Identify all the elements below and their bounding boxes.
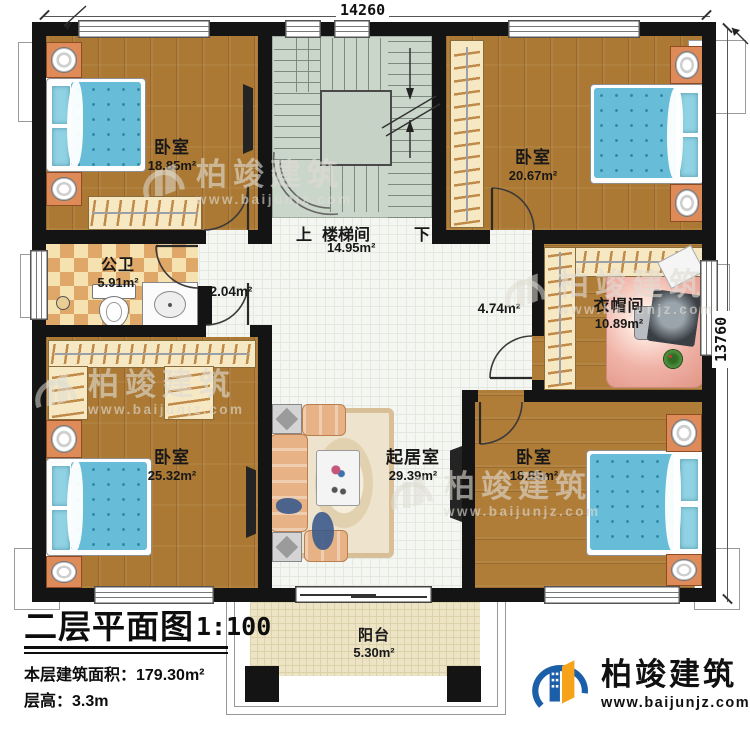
closet-bedroom-tr xyxy=(450,40,484,228)
label-corridor: 4.74m² xyxy=(478,301,521,317)
room-area: 5.30m² xyxy=(353,645,394,661)
nightstand xyxy=(46,420,82,458)
closet-hangers xyxy=(52,368,84,418)
closet-cloakroom-left xyxy=(544,247,576,390)
dimension-width-value: 14260 xyxy=(336,1,389,19)
balcony-post-left xyxy=(245,666,279,702)
title-underline-thick xyxy=(24,646,228,649)
side-table xyxy=(272,404,302,434)
lamp-icon xyxy=(51,47,77,73)
nightstand xyxy=(666,414,702,452)
floor-area-text: 本层建筑面积：179.30m² xyxy=(24,661,205,685)
coffee-table xyxy=(316,450,360,506)
wall-living-bedroombr xyxy=(462,390,475,588)
wall-h1-a xyxy=(32,230,206,244)
closet-rod xyxy=(559,252,561,385)
label-bathroom: 公卫 5.91m² xyxy=(97,256,138,291)
nightstand xyxy=(46,42,82,78)
lamp-icon xyxy=(671,419,697,446)
room-area: 18.85m² xyxy=(510,468,558,484)
closet-bedroom-bl xyxy=(48,340,256,368)
label-bedroom-bl: 卧室 25.32m² xyxy=(148,448,196,484)
sink-icon xyxy=(142,282,198,327)
window-top-2 xyxy=(285,20,321,38)
nightstand xyxy=(46,172,82,206)
room-area: 20.67m² xyxy=(509,168,557,184)
sheet-fold xyxy=(667,87,683,179)
room-name: 卧室 xyxy=(148,138,196,158)
stairwell-area: 14.95m² xyxy=(327,240,375,255)
room-area: 18.85m² xyxy=(148,158,196,174)
lamp-icon xyxy=(675,51,699,78)
window-top-4 xyxy=(508,20,640,38)
stair-treads-right xyxy=(388,38,432,218)
title-underline-thin xyxy=(24,652,228,654)
floor-height-text: 层高：3.3m xyxy=(24,687,108,711)
label-living-room: 起居室 29.39m² xyxy=(386,448,440,484)
lamp-icon xyxy=(51,561,77,584)
room-name: 卧室 xyxy=(510,448,558,468)
closet-rod xyxy=(55,353,249,355)
person-figure xyxy=(276,498,302,514)
closet-hangers xyxy=(168,367,210,419)
dimension-tick xyxy=(39,10,50,21)
lamp-icon xyxy=(51,425,77,452)
label-bedroom-br: 卧室 18.85m² xyxy=(510,448,558,484)
window-top-3 xyxy=(334,20,370,38)
room-name: 卧室 xyxy=(148,448,196,468)
company-logo-icon xyxy=(531,654,593,716)
mattress xyxy=(594,88,676,178)
wall-bedroombl-living xyxy=(258,337,272,588)
pillow xyxy=(678,457,700,503)
bed-tr xyxy=(590,84,704,184)
armchair-top xyxy=(302,404,346,436)
label-hallway: 2.04m² xyxy=(210,284,253,300)
bed-br xyxy=(586,450,704,556)
label-bedroom-tl: 卧室 18.85m² xyxy=(148,138,196,174)
lamp-icon xyxy=(51,177,77,201)
stair-landing xyxy=(320,90,392,166)
company-logo-text: 柏竣建筑 www.baijunjz.com xyxy=(601,659,750,711)
stair-down-label: 下 xyxy=(414,221,430,245)
stair-treads-bottom xyxy=(330,162,388,212)
room-name: 衣帽间 xyxy=(593,297,644,316)
wall-cloakroom-left-a xyxy=(532,244,544,336)
balcony-post-right xyxy=(447,666,481,702)
computer-monitor-icon xyxy=(647,289,702,347)
plan-scale: 1:100 xyxy=(196,612,271,641)
closet-bedroom-bl-left xyxy=(48,366,88,420)
dimension-height-value: 13760 xyxy=(712,311,730,368)
wall-h1-b xyxy=(248,230,272,244)
room-area: 29.39m² xyxy=(386,468,440,484)
window-bathroom xyxy=(30,250,48,320)
company-url: www.baijunjz.com xyxy=(601,695,750,711)
closet-rod xyxy=(466,47,468,222)
person-figure xyxy=(312,512,334,550)
closet-bedroom-tl xyxy=(88,196,202,230)
company-logo: 柏竣建筑 www.baijunjz.com xyxy=(531,654,750,716)
company-name: 柏竣建筑 xyxy=(601,659,750,690)
dimension-tick xyxy=(701,10,712,21)
bed-bl xyxy=(46,458,152,556)
floor-plan-canvas: 卧室 18.85m² 卧室 20.67m² 上 楼梯间 14.95m² 下 公卫… xyxy=(0,0,750,735)
wall-bedroomtl-stair xyxy=(258,36,272,230)
wall-stair-bedroomtr xyxy=(432,36,446,244)
nightstand xyxy=(666,554,702,586)
bed-tl xyxy=(46,78,146,172)
wall-h2-a xyxy=(432,230,490,244)
room-area: 4.74m² xyxy=(478,301,521,317)
arrowhead-icon xyxy=(732,28,740,36)
plan-title: 二层平面图 xyxy=(24,600,194,648)
nightstand xyxy=(670,184,704,222)
sofa-main xyxy=(270,434,308,532)
room-name: 卧室 xyxy=(509,148,557,168)
balcony-sliding-door xyxy=(295,586,432,603)
stair-treads-left xyxy=(274,40,320,160)
tv-bedroom-tl xyxy=(243,84,253,154)
closet-rod xyxy=(92,212,197,214)
pillow xyxy=(678,505,700,551)
tv-living-room xyxy=(450,446,462,522)
sheet-fold xyxy=(67,81,83,167)
room-name: 阳台 xyxy=(353,627,394,645)
lamp-icon xyxy=(671,559,697,582)
room-area: 10.89m² xyxy=(593,316,644,332)
window-top-1 xyxy=(78,20,210,38)
room-area: 5.91m² xyxy=(97,275,138,291)
lamp-icon xyxy=(675,189,699,216)
wall-h3-b xyxy=(250,325,272,337)
label-bedroom-tr: 卧室 20.67m² xyxy=(509,148,557,184)
wall-h2-b xyxy=(532,230,716,244)
nightstand xyxy=(46,556,82,588)
mattress xyxy=(590,454,674,550)
stair-up-label: 上 xyxy=(296,221,312,245)
side-table xyxy=(272,532,302,562)
room-area: 25.32m² xyxy=(148,468,196,484)
sheet-fold xyxy=(67,461,83,551)
wall-h4-b xyxy=(524,390,716,402)
room-name: 公卫 xyxy=(97,256,138,275)
nightstand xyxy=(670,46,704,84)
closet-bedroom-bl-right xyxy=(164,366,214,420)
label-balcony: 阳台 5.30m² xyxy=(353,627,394,661)
wall-h3-a xyxy=(32,325,206,337)
floor-drain-icon xyxy=(56,296,70,310)
sheet-fold xyxy=(665,453,681,551)
room-name: 起居室 xyxy=(386,448,440,468)
plant-icon xyxy=(664,350,682,368)
room-area: 2.04m² xyxy=(210,284,253,300)
tv-bedroom-bl xyxy=(246,466,256,538)
window-bottom-right xyxy=(544,586,680,604)
wall-cloakroom-left-b xyxy=(532,380,544,390)
label-cloakroom: 衣帽间 10.89m² xyxy=(593,297,644,332)
